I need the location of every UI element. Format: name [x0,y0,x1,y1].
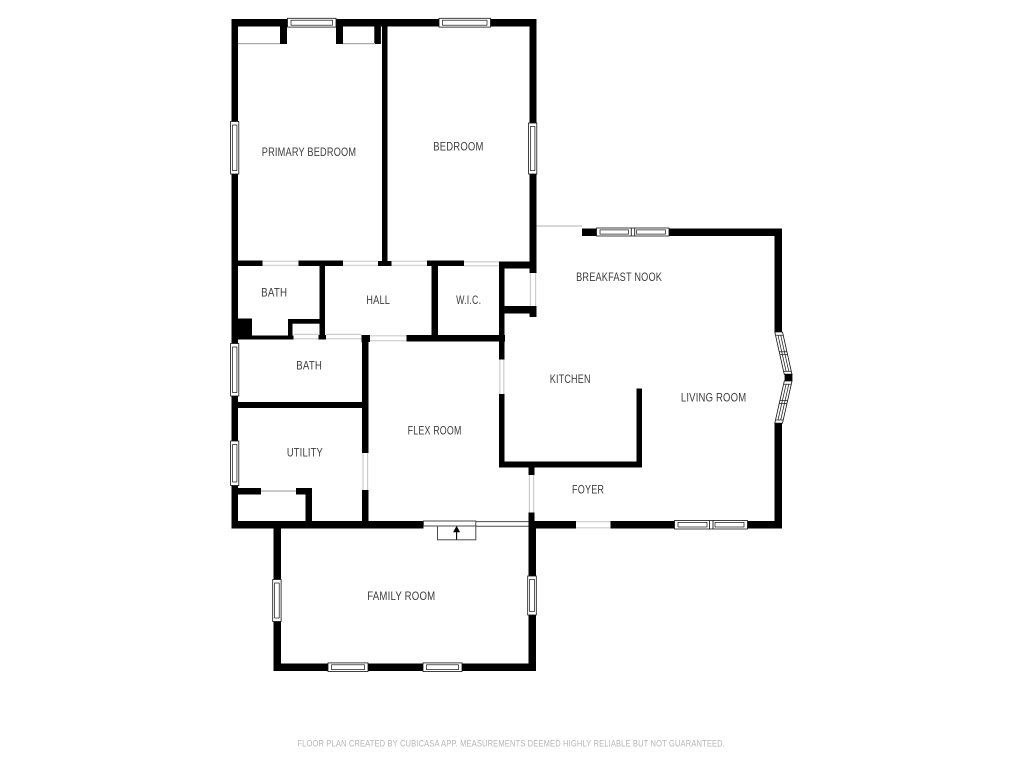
svg-text:LIVING ROOM: LIVING ROOM [681,390,747,404]
svg-text:FLOOR PLAN CREATED BY CUBICASA: FLOOR PLAN CREATED BY CUBICASA APP. MEAS… [297,739,725,749]
svg-text:HALL: HALL [366,293,390,307]
svg-text:BATH: BATH [296,359,322,373]
svg-text:BREAKFAST NOOK: BREAKFAST NOOK [576,270,662,284]
svg-text:BEDROOM: BEDROOM [433,139,483,153]
svg-text:FLEX ROOM: FLEX ROOM [408,424,462,438]
svg-text:KITCHEN: KITCHEN [550,372,591,386]
svg-text:PRIMARY BEDROOM: PRIMARY BEDROOM [262,145,357,159]
svg-text:FOYER: FOYER [572,483,604,497]
svg-text:UTILITY: UTILITY [287,446,323,460]
svg-text:FAMILY ROOM: FAMILY ROOM [367,589,435,603]
svg-text:BATH: BATH [261,286,287,300]
svg-text:W.I.C.: W.I.C. [456,293,481,307]
